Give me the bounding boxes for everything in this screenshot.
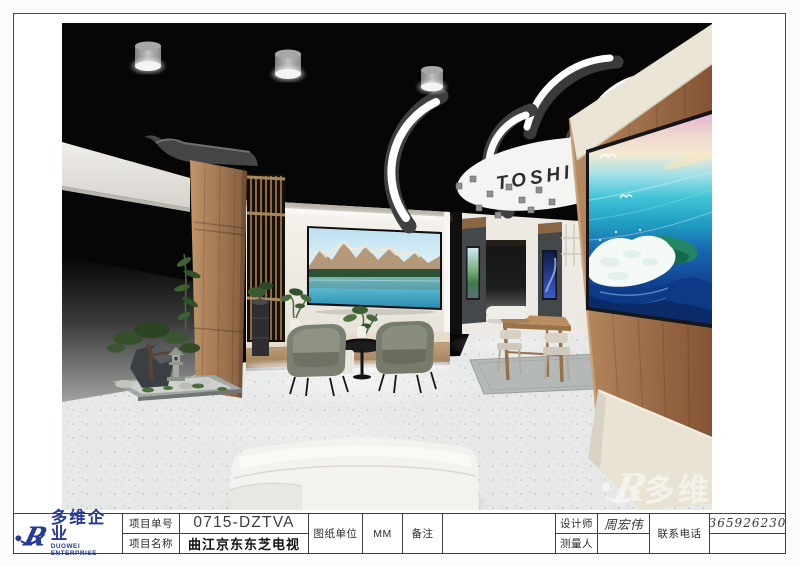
title-block: R 多维企业 DUOWEI ENTERPRISE 项目单号 0715-DZTVA… <box>13 513 786 554</box>
downlight-icon <box>132 42 164 74</box>
phone-label: 联系电话 <box>650 514 710 553</box>
remark-label: 备注 <box>403 514 443 553</box>
company-name-en: DUOWEI ENTERPRISE <box>51 544 122 557</box>
downlight-icon <box>418 66 446 93</box>
project-no-value: 0715-DZTVA <box>180 514 309 534</box>
downlight-icon <box>272 50 304 82</box>
phone-value: 13659262305 <box>710 514 785 534</box>
white-bench <box>486 306 530 319</box>
watermark-dot-icon <box>602 483 610 491</box>
company-logo: R 多维企业 DUOWEI ENTERPRISE <box>14 514 123 553</box>
project-name-value: 曲江京东东芝电视 <box>180 534 309 554</box>
remark-value <box>443 514 556 553</box>
company-name-cn: 多维企业 <box>51 510 122 543</box>
designer-label: 设计师 <box>556 514 598 534</box>
unit-value: MM <box>363 514 403 553</box>
surveyor-value <box>598 534 650 554</box>
showroom-render: TOSHIBA <box>62 23 712 510</box>
tv-screen-mountain-lake <box>309 224 440 308</box>
project-no-label: 项目单号 <box>123 514 180 534</box>
doorway-opening <box>486 246 526 316</box>
tv-screen-landscape-a <box>468 248 479 298</box>
watermark-text: 多维 <box>644 473 712 508</box>
unit-label: 图纸单位 <box>309 514 363 553</box>
company-logo-mark-icon: R <box>14 516 49 552</box>
surveyor-label: 测量人 <box>556 534 598 554</box>
showroom-render-canvas: TOSHIBA <box>62 23 712 510</box>
project-name-label: 项目名称 <box>123 534 180 554</box>
designer-value: 周宏伟 <box>598 514 650 534</box>
ottoman <box>228 437 484 511</box>
watermark: R 多维 <box>602 466 712 510</box>
phone-empty-cell <box>710 534 785 554</box>
svg-text:R: R <box>20 521 49 551</box>
